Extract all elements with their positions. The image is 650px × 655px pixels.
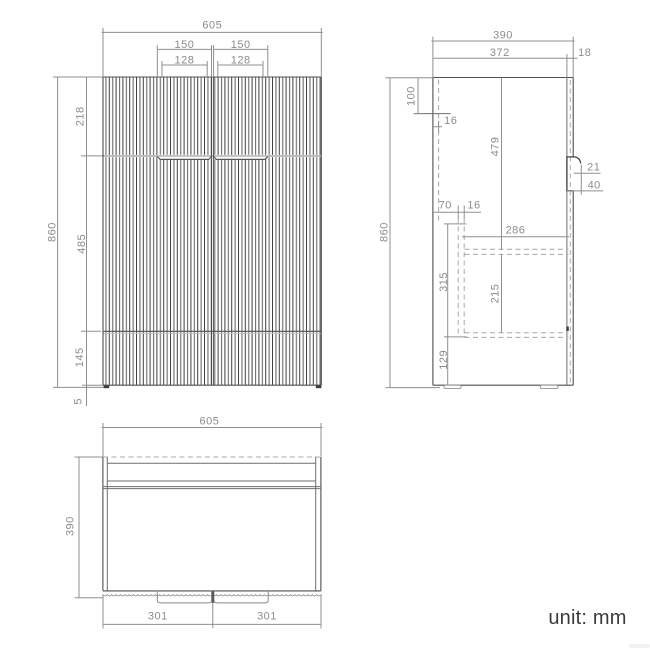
svg-text:16: 16	[444, 115, 457, 127]
svg-text:40: 40	[588, 179, 601, 191]
svg-text:372: 372	[490, 47, 510, 59]
svg-text:301: 301	[148, 610, 168, 622]
svg-text:unit: mm: unit: mm	[548, 607, 626, 629]
svg-text:485: 485	[76, 234, 88, 254]
svg-text:860: 860	[379, 222, 391, 242]
svg-text:390: 390	[493, 30, 513, 42]
svg-text:16: 16	[467, 200, 480, 212]
svg-text:215: 215	[490, 284, 502, 304]
svg-text:390: 390	[64, 516, 76, 536]
svg-text:70: 70	[439, 200, 452, 212]
svg-text:100: 100	[405, 86, 417, 106]
svg-text:129: 129	[438, 350, 450, 370]
svg-text:301: 301	[257, 610, 277, 622]
svg-text:145: 145	[74, 347, 86, 367]
svg-text:860: 860	[47, 222, 59, 242]
svg-text:21: 21	[587, 161, 600, 173]
svg-text:605: 605	[202, 20, 222, 32]
svg-text:150: 150	[231, 39, 251, 51]
svg-text:218: 218	[74, 106, 86, 126]
svg-text:315: 315	[438, 272, 450, 292]
svg-text:5: 5	[73, 398, 85, 405]
svg-text:150: 150	[174, 39, 194, 51]
svg-text:479: 479	[490, 137, 502, 157]
svg-text:128: 128	[174, 55, 194, 67]
svg-text:605: 605	[199, 416, 219, 428]
svg-text:128: 128	[231, 55, 251, 67]
svg-text:286: 286	[506, 224, 526, 236]
svg-text:18: 18	[578, 47, 591, 59]
